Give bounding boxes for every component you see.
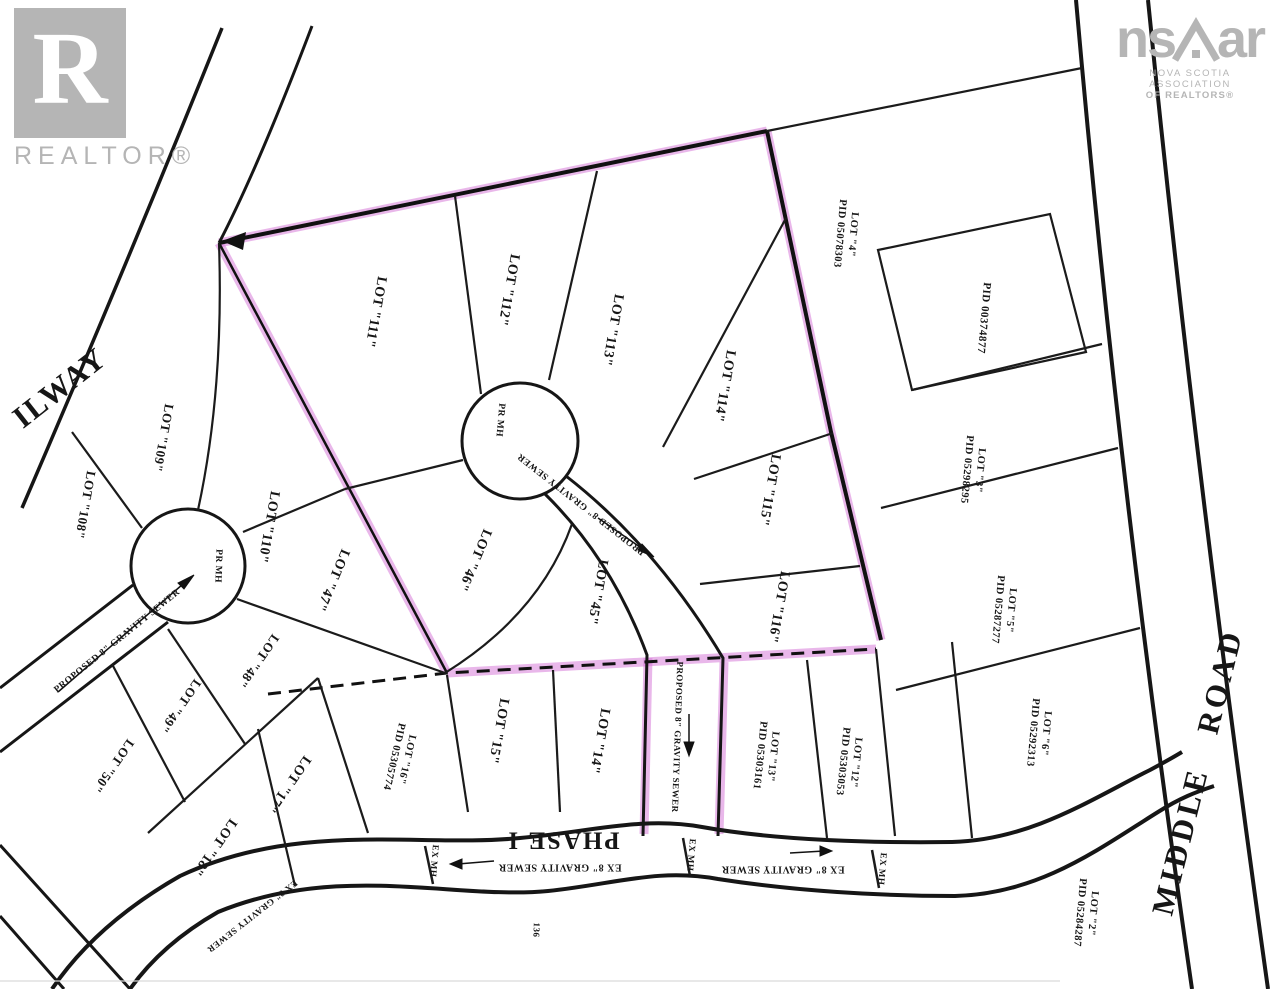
scan-artifact-line xyxy=(0,980,1060,982)
nsar-logo: ns ar NOVA SCOTIA ASSOCIATION OF REALTOR… xyxy=(1108,14,1272,101)
pr-mh-west-label: PR MH xyxy=(210,549,223,583)
cul-de-sac-west xyxy=(131,509,245,623)
realtor-logo: R REALTOR® xyxy=(14,8,214,171)
realtor-wordmark: REALTOR® xyxy=(14,142,214,171)
artifact-text: 136 xyxy=(530,922,542,937)
nsar-letters-left: ns xyxy=(1116,15,1175,64)
realtor-block-r-icon: R xyxy=(14,8,126,138)
nsar-association-line2: OF REALTORS® xyxy=(1108,90,1272,101)
house-roof-icon xyxy=(1171,14,1221,64)
realtor-letter: R xyxy=(32,17,107,121)
nsar-letters-right: ar xyxy=(1217,15,1264,64)
subdivision-plat-map: R REALTOR® ns ar NOVA SCOTIA ASSOCIATION… xyxy=(0,0,1280,989)
nsar-association-line1: NOVA SCOTIA ASSOCIATION xyxy=(1108,68,1272,90)
ex-gravity-sewer-right-label: EX 8" GRAVITY SEWER xyxy=(721,862,844,875)
phase-1-label: PHASE I xyxy=(506,824,619,855)
ex-gravity-sewer-left-label: EX 8" GRAVITY SEWER xyxy=(498,860,621,873)
